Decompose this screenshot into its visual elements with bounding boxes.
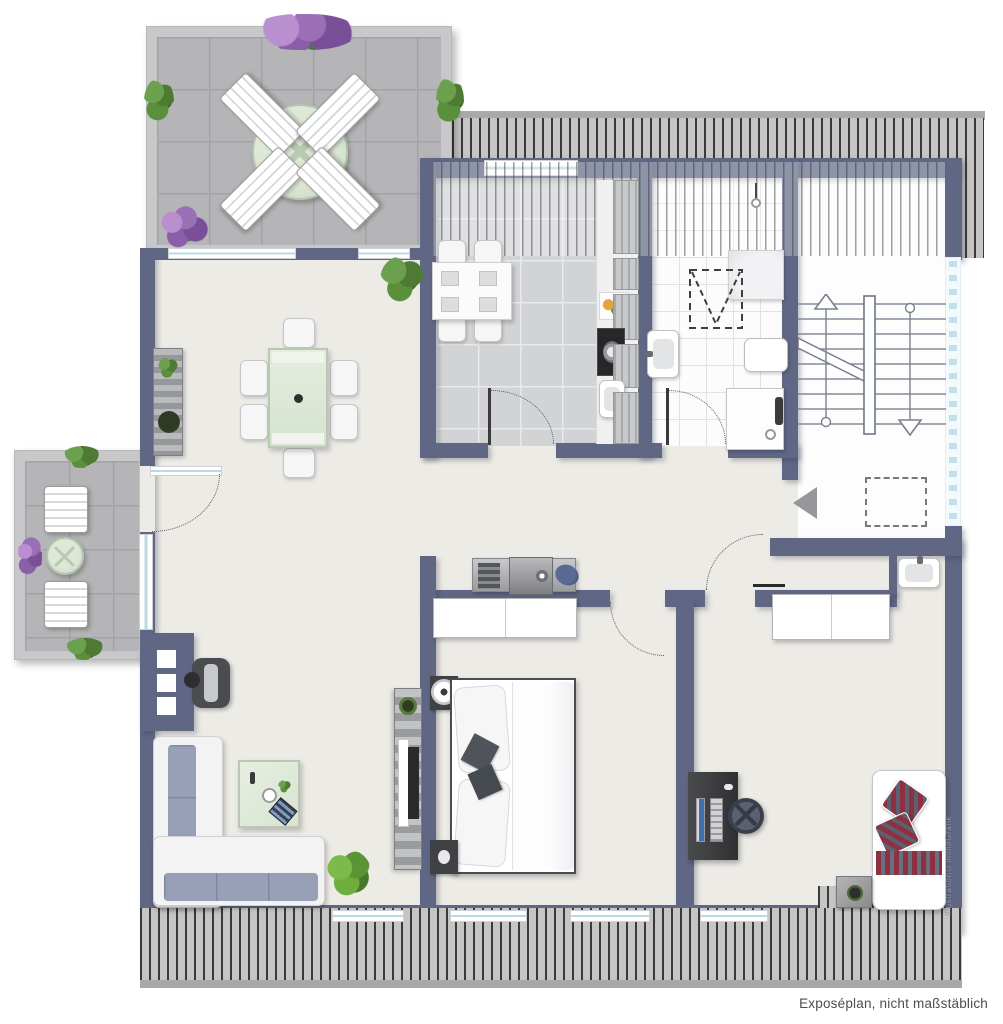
balcony-lounger (44, 581, 88, 628)
living-window (332, 910, 404, 922)
entrance-arrow-icon (793, 487, 817, 519)
placemat (441, 271, 459, 286)
books (478, 563, 500, 589)
flower-planter (18, 533, 42, 579)
potted-plant (158, 357, 178, 379)
armchair-cushion (204, 664, 218, 702)
kitchen-table (432, 262, 512, 320)
wall-entry-bottom (770, 538, 962, 556)
kitchen-cabinet (613, 258, 639, 290)
coffee-table (238, 760, 300, 828)
office-window (700, 910, 768, 922)
placemat (479, 297, 497, 312)
bath-sink (647, 330, 679, 378)
dining-table (268, 348, 328, 448)
roof-window-marking (865, 477, 927, 527)
remote (250, 772, 255, 784)
balcony-table (46, 537, 84, 575)
nightstand-item (438, 850, 450, 864)
footer-caption: Exposéplan, nicht maßstäblich (799, 996, 988, 1011)
down-arrow-icon (899, 420, 921, 435)
striped-blanket (876, 851, 942, 875)
roof-window-marking (688, 268, 744, 330)
armchair-footrest (184, 672, 200, 688)
radio (509, 557, 553, 595)
tv-sideboard (394, 688, 422, 870)
roof-band-top (452, 118, 983, 162)
floor-plant (326, 850, 372, 900)
hall-sink (898, 558, 940, 588)
bush-planter (436, 76, 464, 126)
wall-nook-stub (889, 556, 897, 594)
staircase (798, 294, 946, 436)
duvet (512, 682, 574, 870)
daybed (872, 770, 946, 910)
table-end (272, 433, 324, 444)
chimney-flue (157, 674, 176, 692)
wall-hall-north (556, 443, 662, 458)
plant-on-sideboard (399, 697, 417, 715)
bedroom-window (450, 910, 527, 922)
mouse (724, 784, 733, 790)
balcony-glazing (139, 534, 153, 630)
living-sideboard (153, 348, 183, 456)
watermark: Illustration©immoGrafik (944, 790, 953, 916)
side-table (836, 876, 872, 908)
chimney-flue (157, 650, 176, 668)
roof-slope-hatching (432, 162, 946, 256)
floor-plan: Illustration©immoGrafik Exposéplan, nich… (0, 0, 1003, 1024)
speaker-icon (536, 570, 548, 582)
wall-hall-north (420, 443, 488, 458)
shower-drain (765, 429, 776, 440)
bedroom-window (570, 910, 650, 922)
dining-chair (330, 360, 358, 396)
bush-planter (144, 78, 174, 124)
monitor (696, 798, 705, 842)
table-plant (278, 780, 291, 793)
flower-planter (252, 14, 356, 50)
chimney-flue (157, 697, 176, 715)
stair-stringer (864, 296, 875, 434)
wall-right-top (945, 158, 962, 260)
dining-chair (283, 448, 315, 478)
sofa-cushions (164, 873, 318, 901)
shower-head-icon (751, 198, 761, 208)
potted-plant (158, 411, 180, 433)
tv-panel (408, 747, 419, 819)
table-end (272, 352, 324, 363)
flower-planter (158, 204, 208, 250)
wall-bedroom-office (676, 600, 694, 907)
stair-break-line (798, 338, 870, 384)
hall-sideboard (472, 558, 576, 592)
double-bed (450, 678, 576, 874)
roof-band-edge (140, 980, 962, 988)
up-arrow-icon (815, 294, 837, 309)
corner-sofa-horizontal (153, 836, 325, 906)
kitchen-cabinet (613, 180, 639, 254)
nightstand (430, 840, 458, 874)
documents (710, 798, 723, 842)
dining-chair (330, 404, 358, 440)
centerpiece (294, 394, 303, 403)
shower (726, 388, 784, 450)
kitchen-counter (596, 180, 638, 444)
bath-shelf (744, 338, 788, 372)
bedroom-wardrobe (433, 598, 577, 638)
dining-chair (283, 318, 315, 348)
dining-chair (240, 360, 268, 396)
dining-chair (240, 404, 268, 440)
roof-band-bottom (140, 908, 962, 982)
living-plant (380, 256, 424, 304)
faucet-icon (645, 351, 653, 357)
balcony-lounger (44, 486, 88, 533)
stairwell-glass-wall (946, 258, 960, 528)
kitchen-cabinet (613, 392, 639, 444)
bush-planter (62, 446, 102, 468)
armchair (192, 658, 230, 708)
placemat (441, 297, 459, 312)
cup (262, 788, 277, 803)
shower-fixture-icon (755, 183, 757, 198)
office-wardrobe (772, 594, 890, 640)
shower-valve (775, 397, 783, 425)
placemat (479, 271, 497, 286)
bush-planter (64, 638, 106, 660)
faucet-icon (917, 556, 923, 564)
terrace-sliding-door (168, 248, 296, 259)
plant-pot (847, 885, 863, 901)
office-chair (728, 798, 764, 834)
